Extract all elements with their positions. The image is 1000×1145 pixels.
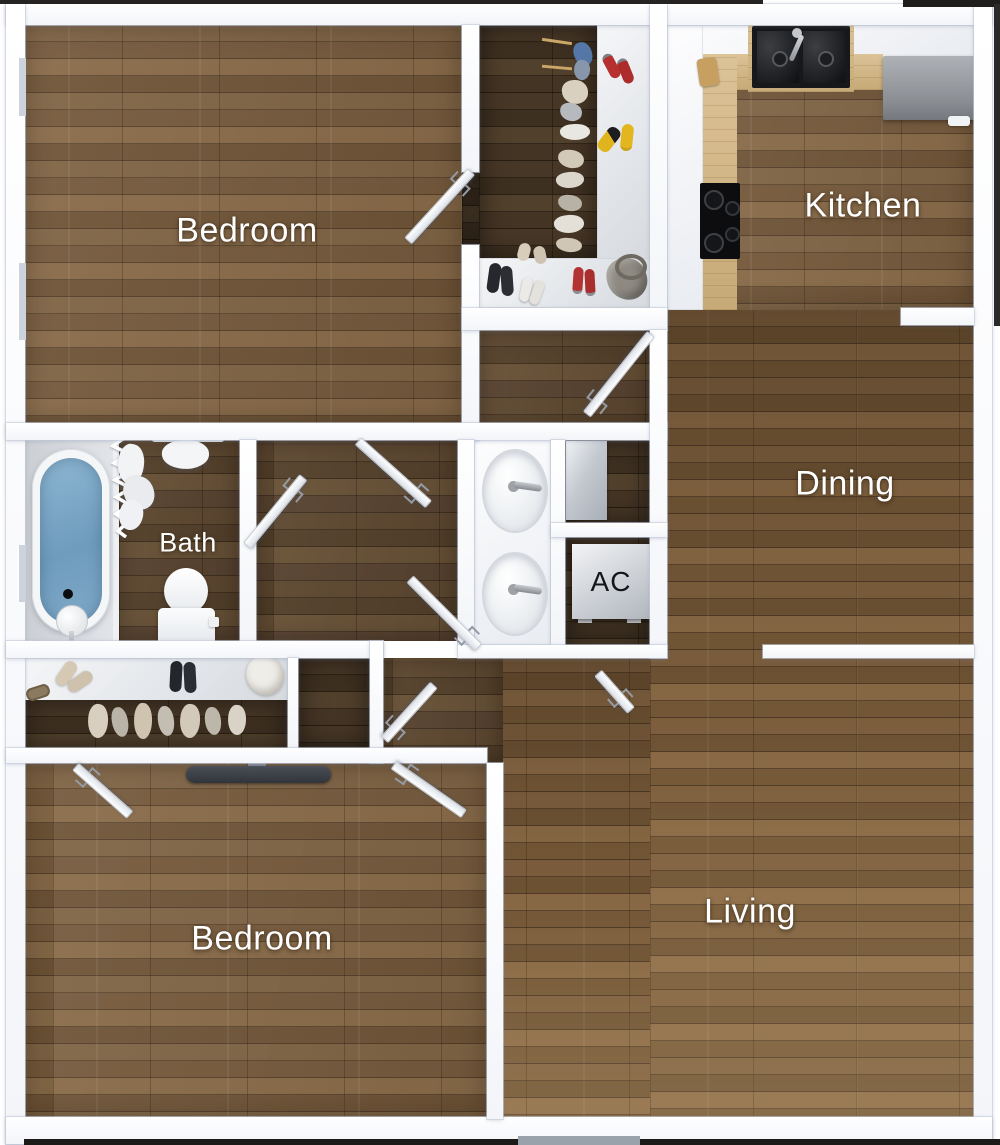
refrigerator-handle [948, 116, 970, 126]
room-label-ac: AC [572, 544, 650, 619]
kitchen-sink-drain-right [818, 51, 834, 67]
closet-bottom-rod-floor [22, 700, 288, 748]
kitchen-sink [752, 26, 850, 88]
mirror [566, 441, 607, 520]
cutting-board [696, 57, 720, 88]
window [18, 263, 26, 340]
edge-line-top [0, 0, 763, 4]
wall-dressing-vanity [458, 440, 474, 645]
stove-burner-icon [704, 190, 724, 210]
wall-hall-dining [650, 330, 667, 658]
room-label-kitchen: Kitchen [805, 187, 922, 226]
room-living-west-floor [503, 645, 650, 1119]
wall-bedroom2-living [487, 763, 503, 1119]
edge-window-bottom [518, 1136, 640, 1145]
kitchen-sink-drain-left [772, 51, 788, 67]
kitchen-counter-wood-left [703, 54, 737, 310]
stove-burner-icon [704, 233, 724, 253]
room-dining-living-floor [650, 310, 974, 1119]
black-shoes [169, 661, 183, 693]
wall-vanity-right [551, 440, 565, 645]
nook-floor [298, 658, 370, 748]
bathtub-drain-icon [63, 589, 73, 599]
bathtub-water [40, 458, 102, 624]
stove [700, 183, 740, 259]
wall-bath-bottom [6, 641, 383, 658]
wall-closet-bottom [462, 308, 667, 330]
wall-dining-living-stub [763, 645, 974, 658]
room-label-bath: Bath [159, 528, 217, 559]
black-shoes [183, 662, 197, 694]
floorplan-canvas: AC Bedroom Kitchen [0, 0, 1000, 1145]
room-label-bedroom-2: Bedroom [191, 920, 332, 959]
red-slippers [572, 267, 584, 295]
edge-line-top-right [903, 0, 1000, 7]
window [18, 58, 26, 116]
wall-exterior-top [6, 4, 992, 25]
ac-unit: AC [572, 544, 650, 619]
stove-burner-icon [725, 201, 740, 216]
wall-bedroom1-right-lower [462, 245, 479, 440]
stove-burner-icon [725, 227, 740, 242]
wall-nook-left [288, 658, 298, 748]
edge-line-right [994, 4, 1000, 326]
edge-line-bottom [24, 1139, 1000, 1145]
wall-bedroom1-bottom [6, 423, 667, 440]
dressing-room-floor [256, 440, 458, 641]
wall-closet-kitchen [650, 4, 667, 330]
wall-kitchen-dining-stub [901, 308, 974, 325]
bag-handle-icon [615, 254, 647, 280]
room-label-dining: Dining [795, 465, 894, 504]
refrigerator [883, 56, 976, 120]
toilet-flush-icon [209, 617, 219, 627]
wall-nook-right [370, 641, 383, 763]
wall-bedroom1-right-upper [462, 25, 479, 172]
black-shoes [500, 266, 514, 297]
wall-exterior-right [974, 4, 992, 1144]
wall-ac-bottom [458, 645, 667, 658]
room-label-living: Living [704, 893, 796, 932]
room-label-bedroom-1: Bedroom [176, 212, 317, 251]
tv [186, 766, 331, 783]
window [18, 545, 26, 602]
wall-bedroom2-top [6, 748, 487, 763]
wall-niche-divider [551, 523, 667, 537]
red-slippers [584, 269, 595, 296]
